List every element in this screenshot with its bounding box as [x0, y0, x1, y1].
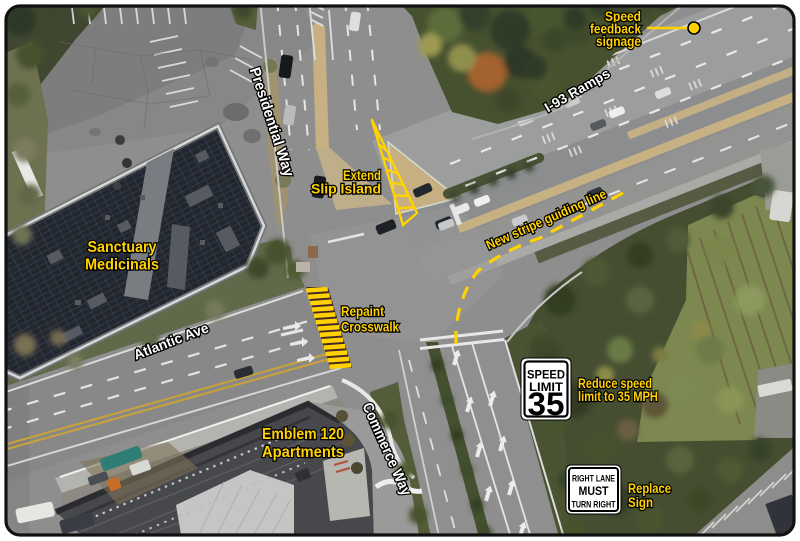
svg-text:signage: signage: [596, 34, 641, 49]
svg-text:35: 35: [528, 386, 565, 422]
svg-text:MUST: MUST: [579, 486, 609, 498]
svg-text:limit to 35 MPH: limit to 35 MPH: [578, 389, 658, 404]
svg-text:Crosswalk: Crosswalk: [341, 320, 399, 335]
svg-text:Slip Island: Slip Island: [311, 181, 381, 197]
svg-text:Apartments: Apartments: [262, 444, 344, 461]
svg-text:Replace: Replace: [628, 481, 671, 496]
svg-text:Sanctuary: Sanctuary: [88, 239, 157, 256]
svg-text:TURN RIGHT: TURN RIGHT: [572, 500, 616, 511]
svg-text:Sign: Sign: [628, 495, 653, 510]
svg-text:RIGHT LANE: RIGHT LANE: [572, 474, 615, 485]
svg-text:Emblem 120: Emblem 120: [262, 426, 344, 443]
svg-text:Repaint: Repaint: [341, 304, 384, 319]
svg-text:Medicinals: Medicinals: [85, 257, 159, 274]
